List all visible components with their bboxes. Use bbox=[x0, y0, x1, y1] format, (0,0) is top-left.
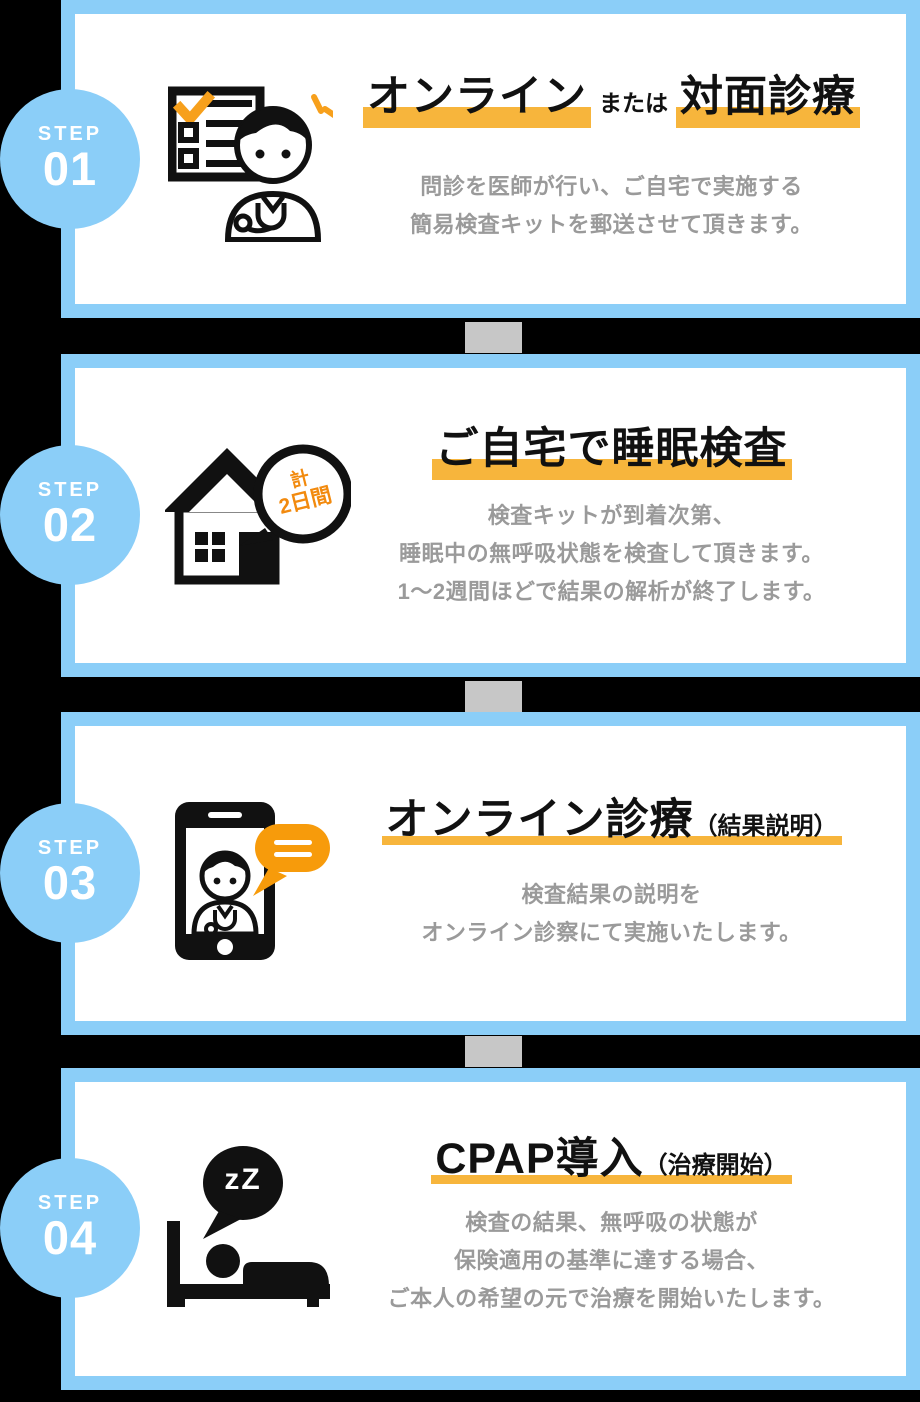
description-line: 睡眠中の無呼吸状態を検査して頂きます。 bbox=[331, 535, 892, 573]
step-description: 問診を医師が行い、ご自宅で実施する 簡易検査キットを郵送させて頂きます。 bbox=[331, 168, 892, 244]
step-title: オンライン診療（結果説明） bbox=[331, 795, 892, 846]
description-line: 検査結果の説明を bbox=[331, 876, 892, 914]
step-number: 04 bbox=[43, 1213, 97, 1262]
title-highlight: オンライン bbox=[363, 73, 591, 128]
description-line: 検査キットが到着次第、 bbox=[331, 497, 892, 535]
description-line: 1〜2週間ほどで結果の解析が終了します。 bbox=[331, 573, 892, 611]
step-number: 01 bbox=[43, 144, 97, 193]
step-title: ご自宅で睡眠検査 bbox=[331, 424, 892, 475]
step-title: CPAP導入（治療開始） bbox=[331, 1134, 892, 1185]
title-note: （結果説明） bbox=[694, 813, 838, 840]
step-card-2: 計 2日間 ご自宅で睡眠検査 検査キットが到着次第、 睡眠中の無呼吸状態を検査し… bbox=[61, 354, 920, 677]
title-highlight: CPAP導入 bbox=[435, 1135, 643, 1183]
step-badge-2: STEP 02 bbox=[0, 445, 140, 585]
zz-badge: zZ bbox=[203, 1165, 283, 1195]
step-description: 検査キットが到着次第、 睡眠中の無呼吸状態を検査して頂きます。 1〜2週間ほどで… bbox=[331, 497, 892, 611]
step-badge-4: STEP 04 bbox=[0, 1158, 140, 1298]
step-connector-1 bbox=[465, 322, 522, 353]
title-connector-text: または bbox=[599, 90, 668, 116]
step-connector-2 bbox=[465, 681, 522, 712]
step-label: STEP bbox=[38, 124, 102, 144]
step-title: オンラインまたは対面診療 bbox=[331, 72, 892, 123]
step-label: STEP bbox=[38, 838, 102, 858]
description-line: 保険適用の基準に達する場合、 bbox=[331, 1242, 892, 1280]
step-description: 検査の結果、無呼吸の状態が 保険適用の基準に達する場合、 ご本人の希望の元で治療… bbox=[331, 1204, 892, 1318]
step-card-1: オンラインまたは対面診療 問診を医師が行い、ご自宅で実施する 簡易検査キットを郵… bbox=[61, 0, 920, 318]
step-label: STEP bbox=[38, 1193, 102, 1213]
title-highlight: ご自宅で睡眠検査 bbox=[432, 425, 792, 480]
step-connector-3 bbox=[465, 1036, 522, 1067]
title-highlight: オンライン診療 bbox=[386, 796, 694, 844]
steps-infographic: オンラインまたは対面診療 問診を医師が行い、ご自宅で実施する 簡易検査キットを郵… bbox=[0, 0, 920, 1402]
description-line: 検査の結果、無呼吸の状態が bbox=[331, 1204, 892, 1242]
step-card-4: zZ CPAP導入（治療開始） 検査の結果、無呼吸の状態が 保険適用の基準に達す… bbox=[61, 1068, 920, 1390]
smartphone-doctor-icon bbox=[175, 798, 330, 962]
step-card-3: オンライン診療（結果説明） 検査結果の説明を オンライン診察にて実施いたします。 bbox=[61, 712, 920, 1035]
checklist-doctor-icon bbox=[168, 86, 333, 242]
description-line: 問診を医師が行い、ご自宅で実施する bbox=[331, 168, 892, 206]
step-description: 検査結果の説明を オンライン診察にて実施いたします。 bbox=[331, 876, 892, 952]
description-line: ご本人の希望の元で治療を開始いたします。 bbox=[331, 1280, 892, 1318]
description-line: 簡易検査キットを郵送させて頂きます。 bbox=[331, 206, 892, 244]
step-number: 02 bbox=[43, 500, 97, 549]
description-line: オンライン診察にて実施いたします。 bbox=[331, 914, 892, 952]
title-note: （治療開始） bbox=[644, 1152, 788, 1179]
title-highlight: 対面診療 bbox=[676, 73, 860, 128]
step-badge-1: STEP 01 bbox=[0, 89, 140, 229]
step-badge-3: STEP 03 bbox=[0, 803, 140, 943]
step-number: 03 bbox=[43, 858, 97, 907]
step-label: STEP bbox=[38, 480, 102, 500]
